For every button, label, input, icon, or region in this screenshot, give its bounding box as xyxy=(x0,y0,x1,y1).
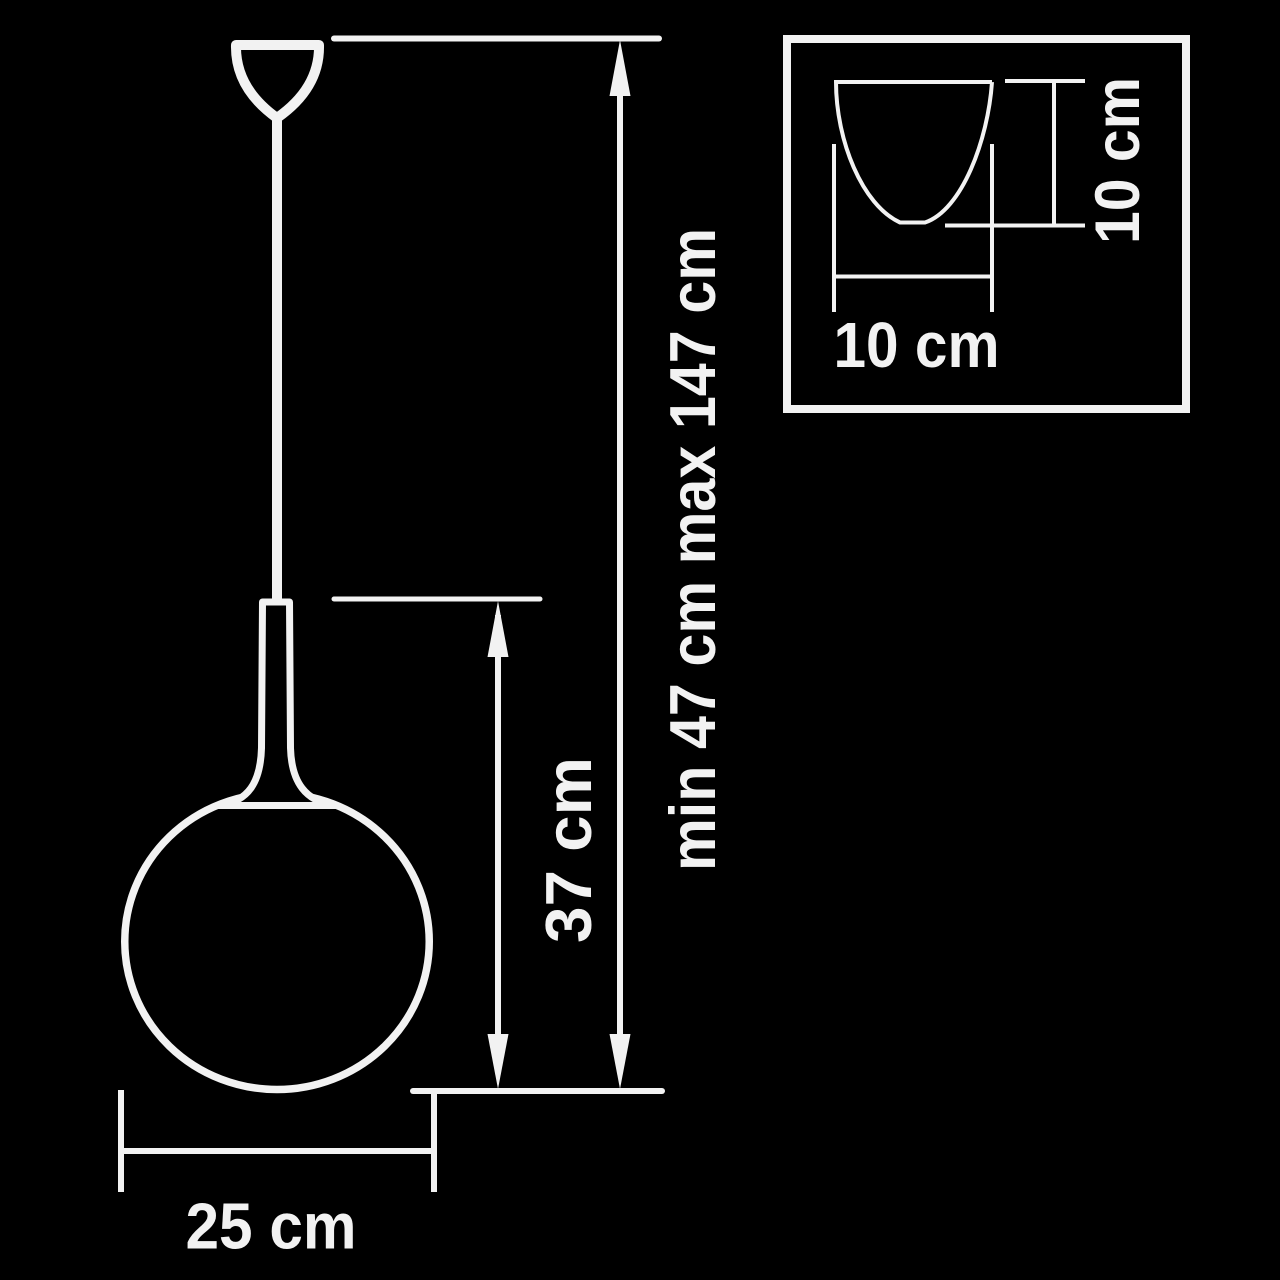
svg-text:37 cm: 37 cm xyxy=(532,757,605,943)
svg-text:10 cm: 10 cm xyxy=(834,309,1000,381)
svg-text:25 cm: 25 cm xyxy=(186,1190,357,1263)
svg-text:min 47 cm max 147 cm: min 47 cm max 147 cm xyxy=(656,228,729,871)
svg-text:10 cm: 10 cm xyxy=(1083,77,1153,244)
